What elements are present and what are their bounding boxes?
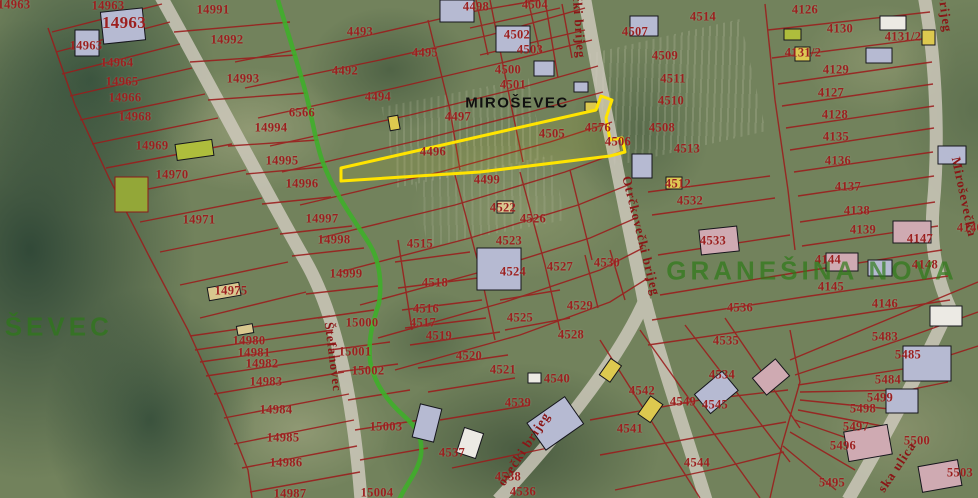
map-viewport[interactable]: MIROŠEVEC 149631496314963149631496414965… xyxy=(0,0,978,498)
road-stefanovec xyxy=(160,0,361,498)
highlight-parcel-outline[interactable] xyxy=(341,96,625,181)
map-canvas xyxy=(0,0,978,498)
road-otrckovecki-brijeg-sw xyxy=(498,300,645,498)
